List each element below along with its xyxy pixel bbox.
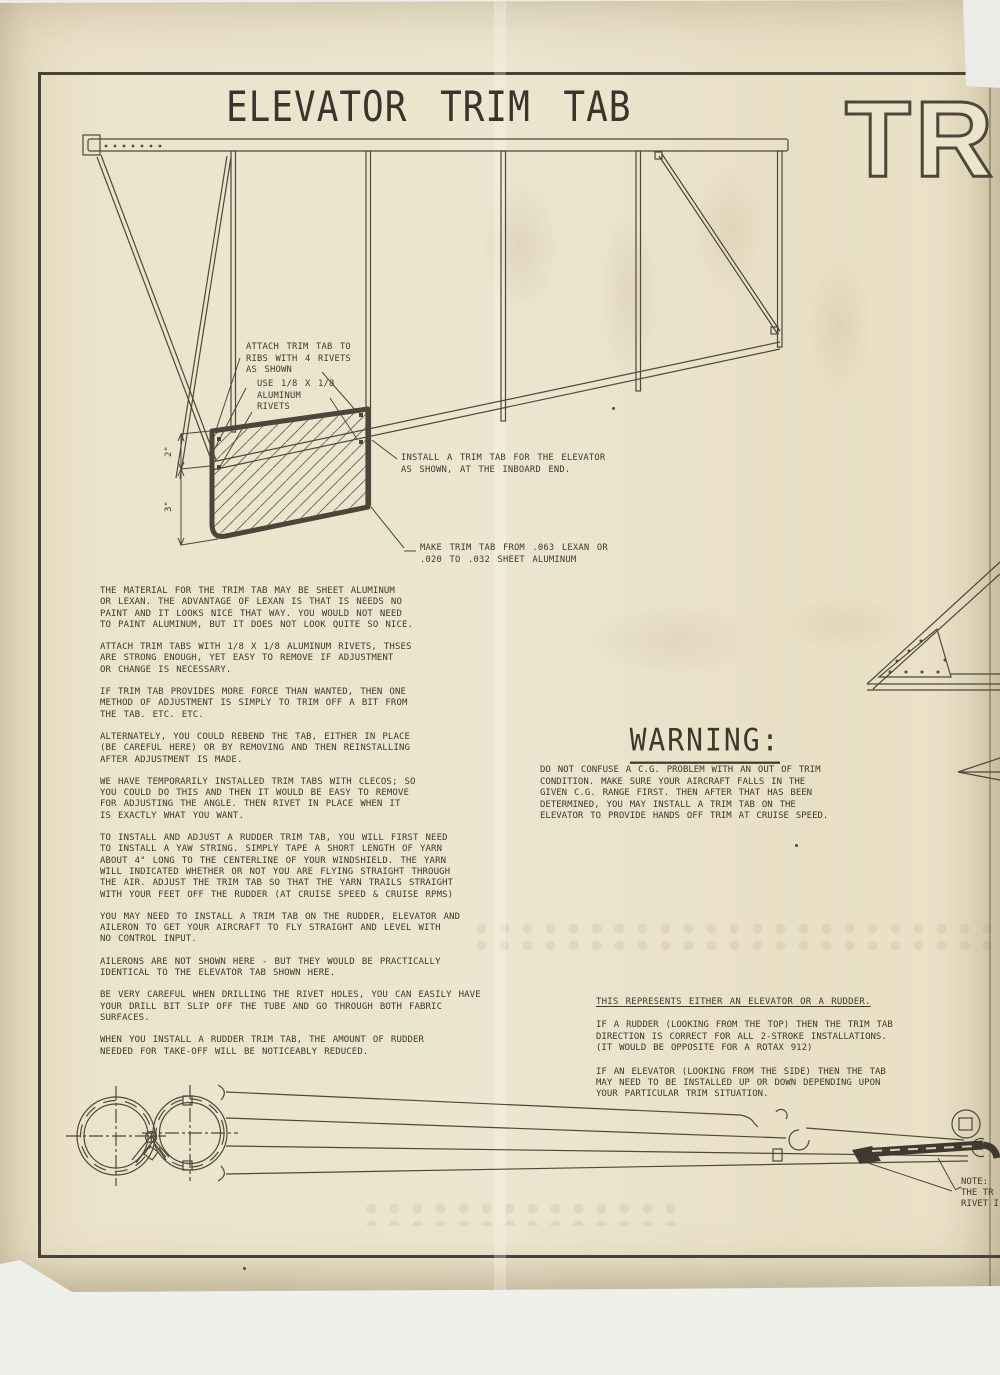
install-note: INSTALL A TRIM TAB FOR THE ELEVATOR AS S… [401, 453, 605, 476]
rib [231, 151, 236, 432]
warning-body: DO NOT CONFUSE A C.G. PROBLEM WITH AN OU… [540, 765, 880, 823]
dimension-label-lower: 3" [164, 501, 174, 512]
dimension-label-upper: 2" [164, 446, 174, 457]
warning-heading: WARNING: [630, 722, 781, 764]
note-paragraph: IF TRIM TAB PROVIDES MORE FORCE THAN WAN… [100, 687, 495, 721]
paper-page: ELEVATOR TRIM TAB TRIM [0, 0, 1000, 1292]
note-paragraph: BE VERY CAREFUL WHEN DRILLING THE RIVET … [100, 990, 495, 1024]
rib [636, 151, 641, 391]
paper-speck [243, 1267, 246, 1270]
edge-note: NOTE: THE TR RIVET I [961, 1177, 1000, 1211]
note-paragraph: TO INSTALL AND ADJUST A RUDDER TRIM TAB,… [100, 833, 495, 901]
edge-note-line: THE TR [961, 1188, 1000, 1199]
rivet-note: USE 1/8 X 1/8 ALUMINUM RIVETS [257, 379, 334, 414]
note-paragraph: WE HAVE TEMPORARILY INSTALLED TRIM TABS … [100, 777, 495, 822]
rib [501, 151, 506, 421]
representation-note-block: THIS REPRESENTS EITHER AN ELEVATOR OR A … [596, 997, 926, 1113]
note-paragraph: YOU MAY NEED TO INSTALL A TRIM TAB ON TH… [100, 912, 495, 946]
paper-speck [612, 407, 615, 410]
elevator-paragraph: IF AN ELEVATOR (LOOKING FROM THE SIDE) T… [596, 1067, 926, 1101]
note-paragraph: ALTERNATELY, YOU COULD REBEND THE TAB, E… [100, 732, 495, 766]
note-paragraph: AILERONS ARE NOT SHOWN HERE - BUT THEY W… [100, 957, 495, 980]
note-paragraph: WHEN YOU INSTALL A RUDDER TRIM TAB, THE … [100, 1035, 495, 1058]
tip-rib [778, 151, 783, 347]
warning-block: WARNING: [540, 722, 870, 760]
scanned-sheet: ELEVATOR TRIM TAB TRIM [0, 0, 1000, 1375]
rudder-paragraph: IF A RUDDER (LOOKING FROM THE TOP) THEN … [596, 1020, 926, 1054]
note-paragraph: THE MATERIAL FOR THE TRIM TAB MAY BE SHE… [100, 586, 495, 631]
paper-speck [795, 844, 798, 847]
notes-column: THE MATERIAL FOR THE TRIM TAB MAY BE SHE… [100, 586, 495, 1069]
edge-note-line: NOTE: [961, 1177, 1000, 1188]
elevator-frame-drawing: 2" 3" [83, 135, 788, 551]
material-note: MAKE TRIM TAB FROM .063 LEXAN OR .020 TO… [420, 543, 608, 566]
note-paragraph: ATTACH TRIM TABS WITH 1/8 X 1/8 ALUMINUM… [100, 642, 495, 676]
trim-tab-hatched [212, 409, 368, 537]
edge-note-line: RIVET I [961, 1199, 1000, 1210]
attach-note: ATTACH TRIM TAB TO RIBS WITH 4 RIVETS AS… [246, 342, 351, 377]
representation-heading: THIS REPRESENTS EITHER AN ELEVATOR OR A … [596, 997, 926, 1008]
corner-banner-text: TRIM [845, 78, 1000, 199]
edge-gusset-drawing [867, 562, 1000, 780]
spar-rivet-dots [105, 145, 162, 148]
